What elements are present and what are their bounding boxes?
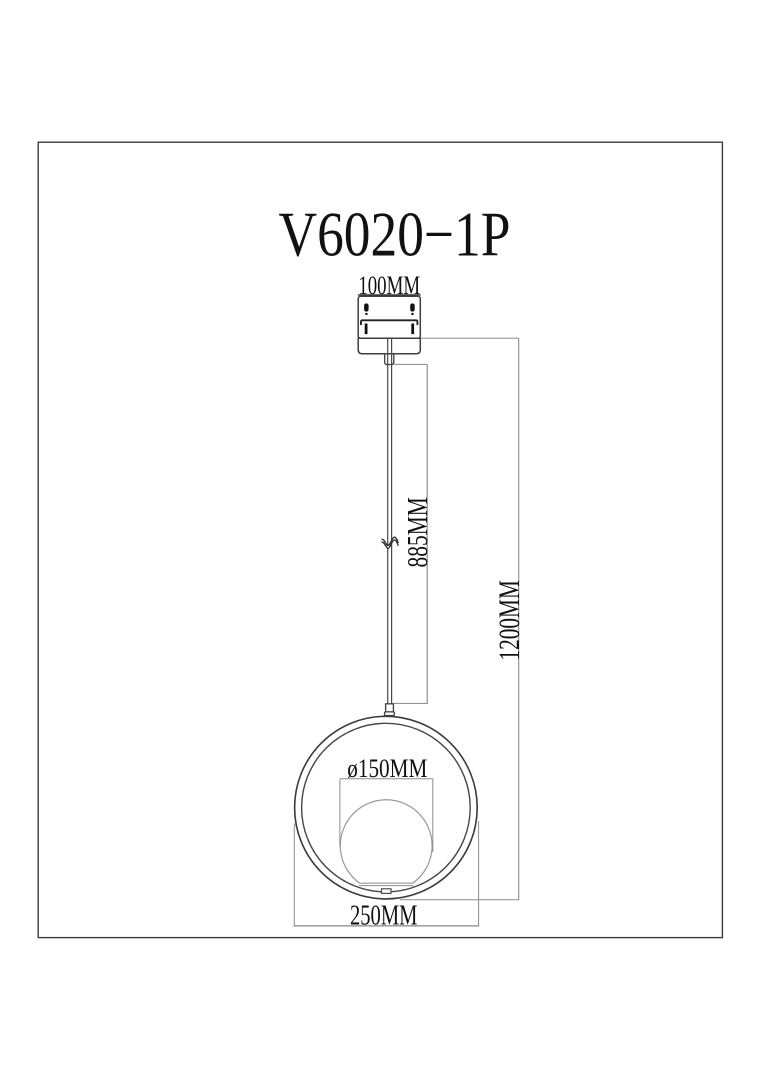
svg-text:250MM: 250MM	[350, 900, 418, 931]
svg-text:V6020−1P: V6020−1P	[279, 198, 511, 270]
svg-text:1200MM: 1200MM	[492, 580, 525, 660]
svg-text:885MM: 885MM	[403, 497, 433, 567]
